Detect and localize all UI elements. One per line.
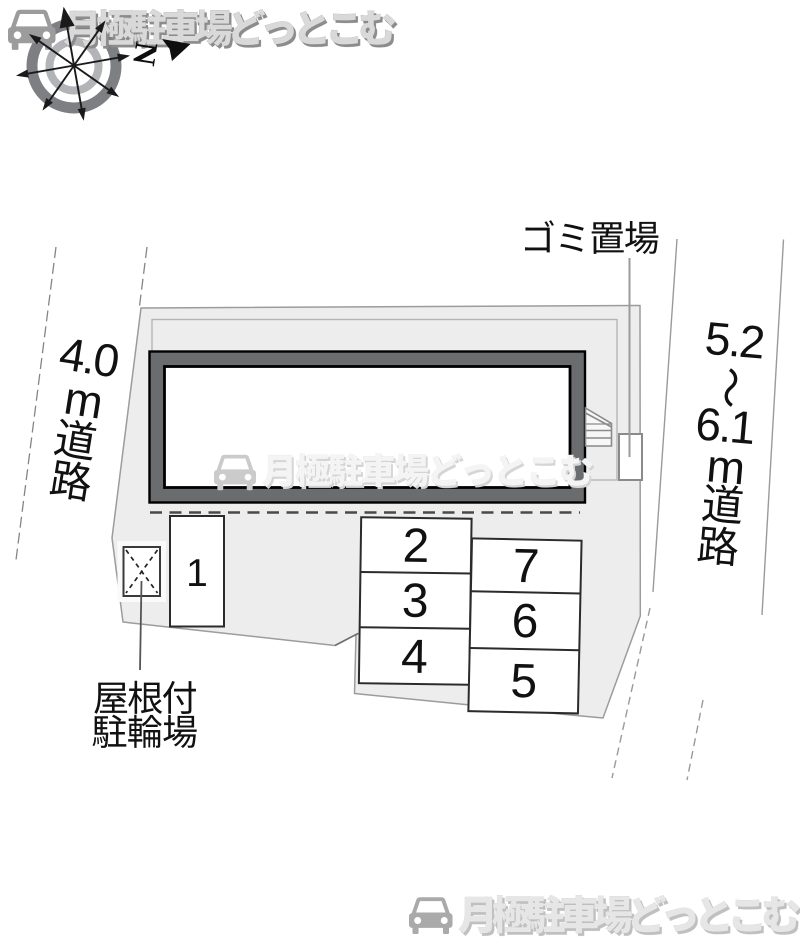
svg-text:3: 3 [402, 575, 429, 628]
svg-text:m: m [705, 439, 748, 494]
svg-text:m: m [61, 371, 107, 428]
svg-text:7: 7 [512, 540, 540, 594]
svg-text:5: 5 [510, 655, 538, 709]
svg-text:2: 2 [402, 520, 429, 573]
svg-text:1: 1 [186, 552, 208, 595]
svg-text:4: 4 [401, 631, 428, 684]
svg-text:5.2: 5.2 [703, 312, 766, 369]
svg-text:6: 6 [511, 595, 539, 649]
